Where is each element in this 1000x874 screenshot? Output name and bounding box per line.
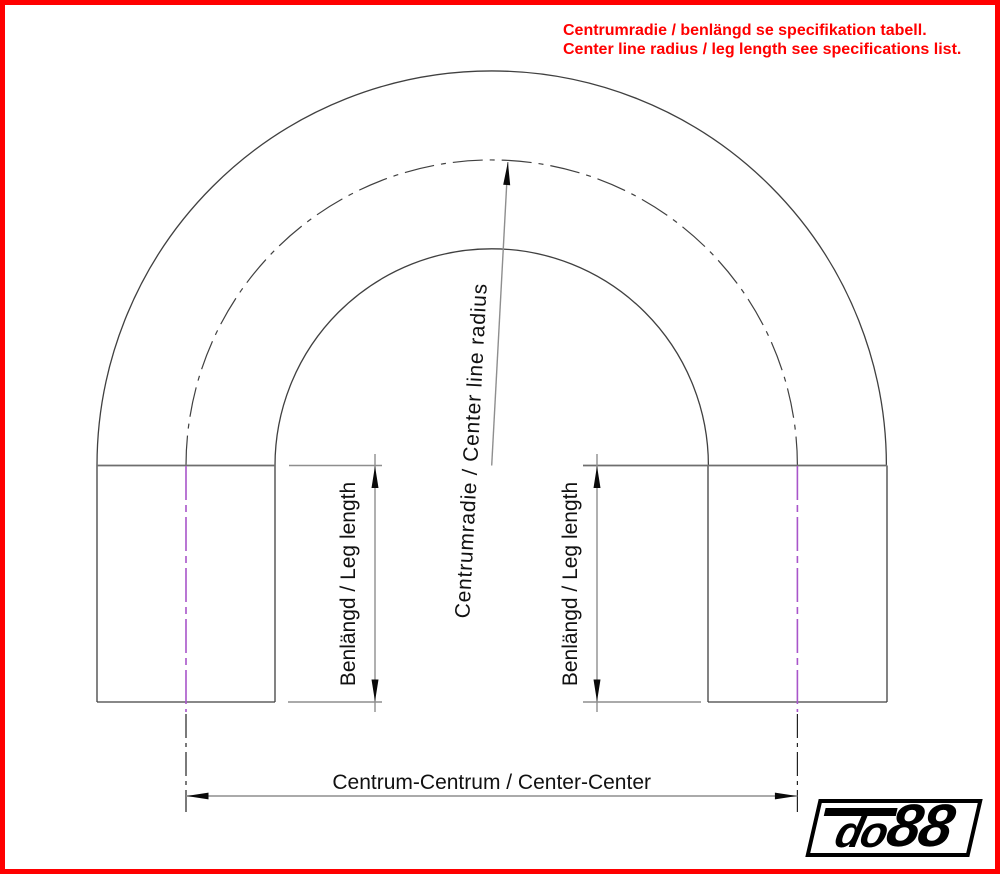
spec-note-line-swedish: Centrumradie / benlängd se specifikation… bbox=[563, 21, 961, 40]
spec-note-line-english: Center line radius / leg length see spec… bbox=[563, 40, 961, 59]
left-leg-dim-arrow-up bbox=[372, 466, 379, 488]
right-leg-dim-arrow-up bbox=[594, 466, 601, 488]
radius-dim-line bbox=[492, 162, 508, 466]
left-leg-length-label: Benlängd / Leg length bbox=[337, 482, 360, 686]
center-center-arrow-left bbox=[187, 793, 209, 800]
inner-arc bbox=[275, 249, 708, 466]
logo-overline-bar bbox=[824, 808, 898, 816]
logo-text-do: do bbox=[832, 816, 890, 850]
center-line-radius-label: Centrumradie / Center line radius bbox=[451, 282, 492, 618]
bend-drawing: Benlängd / Leg length Benlängd / Leg len… bbox=[0, 0, 1000, 874]
right-leg-length-label: Benlängd / Leg length bbox=[559, 482, 582, 686]
left-leg-dim-arrow-down bbox=[372, 680, 379, 702]
right-leg-dim-arrow-down bbox=[594, 680, 601, 702]
spec-note: Centrumradie / benlängd se specifikation… bbox=[563, 21, 961, 59]
radius-dim-arrow bbox=[503, 162, 510, 185]
drawing-page: Centrumradie / benlängd se specifikation… bbox=[0, 0, 1000, 874]
center-center-arrow-right bbox=[775, 793, 797, 800]
center-center-label: Centrum-Centrum / Center-Center bbox=[332, 771, 651, 794]
do88-logo: do88 bbox=[805, 799, 982, 857]
outer-arc bbox=[97, 71, 886, 466]
centerline-arc bbox=[186, 160, 797, 466]
